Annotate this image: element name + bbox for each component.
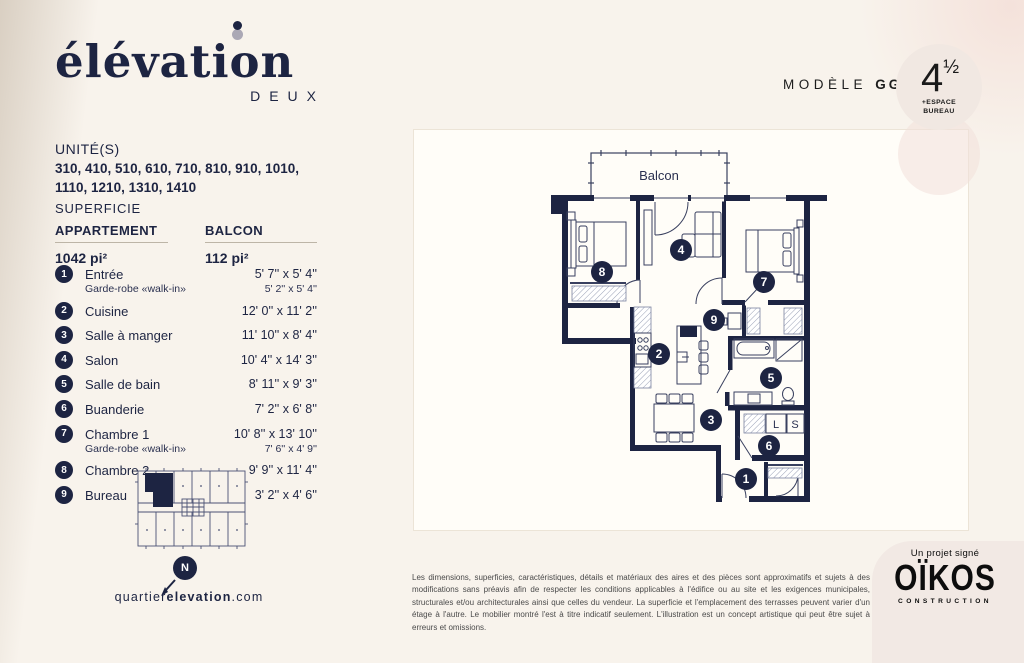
builder-name: OÏKOS (874, 559, 1016, 600)
logo-dot-icon (233, 21, 242, 30)
superficie-label: SUPERFICIE (55, 201, 317, 216)
units-numbers: 310, 410, 510, 610, 710, 810, 910, 1010,… (55, 160, 330, 198)
marker-1: 1 (735, 468, 757, 490)
room-number-badge: 2 (55, 302, 73, 320)
laundry-washer-label: L (773, 419, 779, 431)
room-row: 5 Salle de bain 8' 11'' x 9' 3'' (55, 375, 317, 393)
floorplan-panel: Balcon (413, 129, 969, 531)
room-name: Buanderie (85, 400, 255, 418)
room-number-badge: 7 (55, 425, 73, 443)
room-row: 1 Entrée 5' 7'' x 5' 4'' Garde-robe «wal… (55, 265, 317, 295)
floorplan-drawing: Balcon (414, 130, 968, 530)
room-name: Chambre 1 (85, 425, 234, 443)
brand-wordmark: élévation (55, 39, 331, 84)
website-link[interactable]: quartierelevation.com (72, 590, 306, 604)
units-block: UNITÉ(S) 310, 410, 510, 610, 710, 810, 9… (55, 141, 330, 198)
room-row: 2 Cuisine 12' 0'' x 11' 2'' (55, 302, 317, 320)
website-prefix: quartier (115, 590, 167, 604)
units-label: UNITÉ(S) (55, 141, 330, 157)
floor-keyplan-thumbnail (134, 466, 252, 558)
room-sub-name: Garde-robe «walk-in» (85, 443, 186, 455)
room-name: Salle de bain (85, 375, 249, 393)
room-number-badge: 5 (55, 375, 73, 393)
room-sub-dimensions: 7' 6'' x 4' 9'' (265, 443, 317, 455)
website-bold: elevation (167, 590, 232, 604)
room-row: 4 Salon 10' 4'' x 14' 3'' (55, 351, 317, 369)
room-dimensions: 11' 10'' x 8' 4'' (242, 326, 317, 344)
svg-text:4: 4 (678, 243, 685, 257)
marker-4: 4 (670, 239, 692, 261)
svg-text:1: 1 (743, 472, 750, 486)
marker-6: 6 (758, 435, 780, 457)
appartement-area: 1042 pi² (55, 250, 205, 266)
room-number-badge: 8 (55, 461, 73, 479)
model-title: MODÈLE GG (783, 77, 902, 92)
bed-chambre1 (746, 220, 803, 282)
room-row: 6 Buanderie 7' 2'' x 6' 8'' (55, 400, 317, 418)
brand-wordmark-sub: DEUX (55, 88, 325, 104)
room-dimensions: 8' 11'' x 9' 3'' (249, 375, 317, 393)
marker-9: 9 (703, 309, 725, 331)
svg-text:3: 3 (708, 413, 715, 427)
marker-2: 2 (648, 343, 670, 365)
dining-table (654, 394, 694, 442)
room-name: Salon (85, 351, 241, 369)
room-number-badge: 9 (55, 486, 73, 504)
room-sub-dimensions: 5' 2'' x 5' 4'' (265, 283, 317, 295)
room-dimensions: 5' 7'' x 5' 4'' (255, 265, 317, 283)
units-line-2: 1110, 1210, 1310, 1410 (55, 179, 330, 198)
units-line-1: 310, 410, 510, 610, 710, 810, 910, 1010, (55, 160, 330, 179)
model-label: MODÈLE (783, 77, 867, 92)
room-row: 7 Chambre 1 10' 8'' x 13' 10'' Garde-rob… (55, 425, 317, 455)
superficie-block: SUPERFICIE APPARTEMENT 1042 pi² BALCON 1… (55, 201, 317, 266)
marker-5: 5 (760, 367, 782, 389)
marker-7: 7 (753, 271, 775, 293)
builder-signature: Un projet signé (874, 548, 1016, 559)
room-dimensions: 12' 0'' x 11' 2'' (242, 302, 317, 320)
room-name: Entrée (85, 265, 255, 283)
room-dimensions: 3' 2'' x 4' 6'' (255, 486, 317, 504)
badge-note: +ESPACE BUREAU (922, 99, 956, 117)
badge-number: 4½ (921, 58, 957, 98)
room-number-badge: 6 (55, 400, 73, 418)
brochure-page: élévation DEUX UNITÉ(S) 310, 410, 510, 6… (0, 0, 1024, 663)
balcon-header: BALCON (205, 223, 317, 243)
room-name: Cuisine (85, 302, 242, 320)
svg-text:2: 2 (656, 347, 663, 361)
builder-logo: Un projet signé OÏKOS CONSTRUCTION (874, 548, 1016, 605)
highlighted-unit (145, 473, 173, 507)
marker-8: 8 (591, 261, 613, 283)
svg-text:7: 7 (761, 275, 768, 289)
appartement-header: APPARTEMENT (55, 223, 168, 243)
room-markers: 1 2 3 4 5 6 7 8 9 (591, 239, 782, 490)
svg-text:6: 6 (766, 439, 773, 453)
website-suffix: .com (232, 590, 264, 604)
svg-text:5: 5 (768, 371, 775, 385)
room-dimensions: 10' 8'' x 13' 10'' (234, 425, 317, 443)
room-number-badge: 4 (55, 351, 73, 369)
marker-3: 3 (700, 409, 722, 431)
svg-text:9: 9 (711, 313, 718, 327)
room-number-badge: 3 (55, 326, 73, 344)
room-dimensions: 9' 9'' x 11' 4'' (249, 461, 317, 479)
brand-logo: élévation DEUX (55, 12, 331, 104)
room-dimensions: 7' 2'' x 6' 8'' (255, 400, 317, 418)
legal-disclaimer: Les dimensions, superficies, caractérist… (412, 572, 870, 634)
logo-dot-icon (232, 29, 243, 40)
room-sub-name: Garde-robe «walk-in» (85, 283, 186, 295)
room-dimensions: 10' 4'' x 14' 3'' (241, 351, 317, 369)
laundry-dryer-label: S (791, 419, 798, 431)
room-number-badge: 1 (55, 265, 73, 283)
balcony-label: Balcon (639, 168, 679, 183)
walls (551, 195, 827, 502)
balcon-area: 112 pi² (205, 250, 317, 266)
room-name: Salle à manger (85, 326, 242, 344)
unit-type-badge: 4½ +ESPACE BUREAU (896, 44, 982, 130)
svg-text:8: 8 (599, 265, 606, 279)
room-row: 3 Salle à manger 11' 10'' x 8' 4'' (55, 326, 317, 344)
